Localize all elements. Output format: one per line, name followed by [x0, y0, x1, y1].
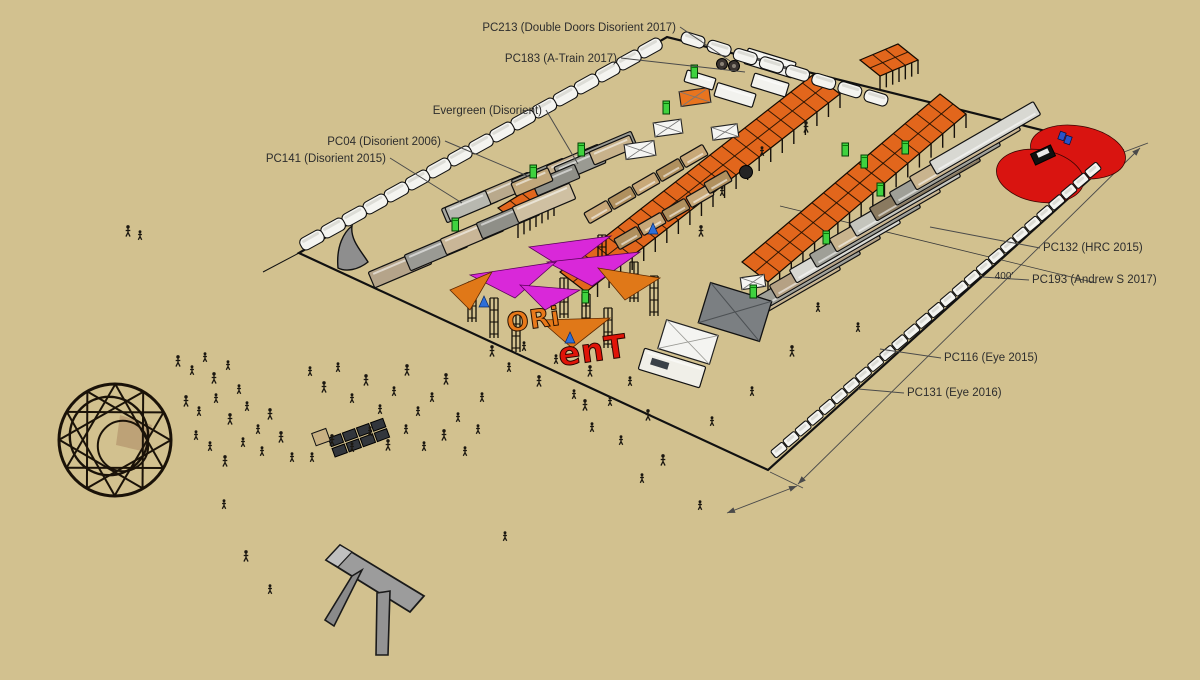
label-pc193: PC193 (Andrew S 2017): [1032, 274, 1157, 286]
label-pc116: PC116 (Eye 2015): [944, 352, 1038, 364]
label-pc04: PC04 (Disorient 2006): [327, 136, 441, 148]
model-viewport[interactable]: ORienTPC213 (Double Doors Disorient 2017…: [0, 0, 1200, 680]
label-pc183: PC183 (A-Train 2017): [505, 53, 617, 65]
scene-canvas: ORienTPC213 (Double Doors Disorient 2017…: [0, 0, 1200, 680]
black-sphere-art: [740, 166, 753, 179]
label-pc131: PC131 (Eye 2016): [907, 387, 1002, 399]
label-evergreen: Evergreen (Disorient): [433, 105, 542, 117]
label-pc213: PC213 (Double Doors Disorient 2017): [482, 22, 676, 34]
label-pc141: PC141 (Disorient 2015): [266, 153, 386, 165]
dimension-text: 400': [995, 271, 1014, 282]
label-pc132: PC132 (HRC 2015): [1043, 242, 1143, 254]
